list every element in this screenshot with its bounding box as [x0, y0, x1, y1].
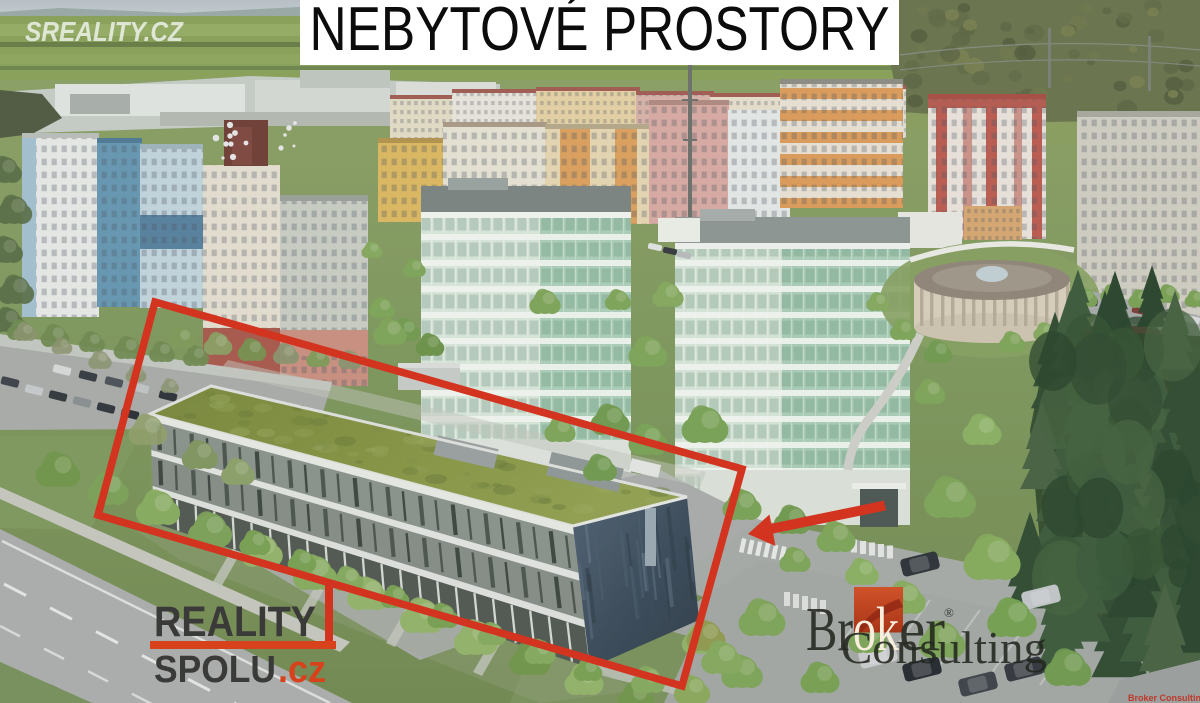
svg-text:REALITY: REALITY — [154, 598, 316, 646]
svg-text:.cz: .cz — [278, 649, 326, 691]
svg-text:Broker Consulting a.s.: Broker Consulting a.s. — [1128, 693, 1200, 703]
svg-text:Consulting: Consulting — [841, 623, 1047, 673]
svg-text:SREALITY.CZ: SREALITY.CZ — [25, 16, 184, 47]
svg-text:NEBYTOVÉ PROSTORY: NEBYTOVÉ PROSTORY — [310, 0, 890, 64]
svg-text:®: ® — [944, 605, 954, 620]
svg-text:SPOLU: SPOLU — [154, 649, 276, 691]
